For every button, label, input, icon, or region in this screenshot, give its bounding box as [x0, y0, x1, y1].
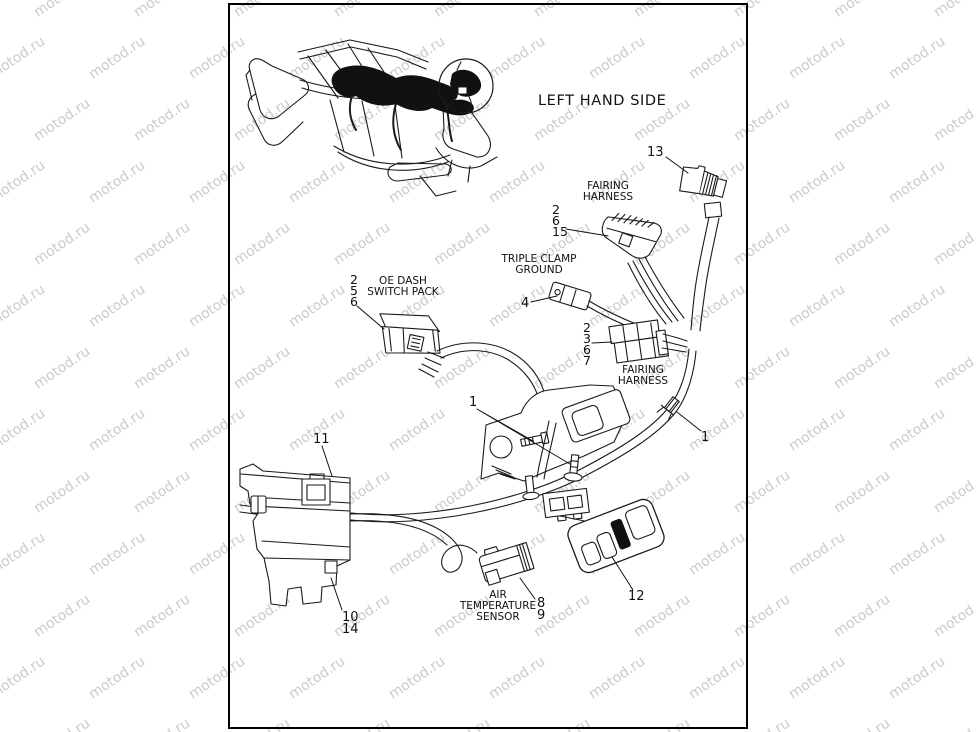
labels-layer: LEFT HAND SIDE 13 FAIRING HARNESS 2 6 15… [0, 0, 976, 732]
parts-diagram-page: motod.rumotod.rumotod.rumotod.rumotod.ru… [0, 0, 976, 732]
label-fairing-harness-mid: FAIRING HARNESS [618, 365, 668, 387]
callout-line: 15 [552, 226, 568, 237]
callout-13: 13 [647, 145, 664, 160]
label-triple-clamp-ground: TRIPLE CLAMP GROUND [502, 254, 577, 276]
callout-line: 7 [583, 355, 591, 366]
callout-4: 4 [521, 296, 529, 311]
label-oe-dash-switch-pack: OE DASH SWITCH PACK [367, 276, 438, 298]
label-line: HARNESS [583, 192, 633, 203]
callout-12: 12 [628, 589, 645, 604]
label-line: GROUND [502, 265, 577, 276]
callout-1-center: 1 [469, 395, 477, 410]
label-air-temperature-sensor: AIR TEMPERATURE SENSOR [460, 590, 536, 623]
callout-group-2-5-6: 2 5 6 [350, 274, 358, 307]
label-line: HARNESS [618, 376, 668, 387]
callout-11: 11 [313, 432, 330, 447]
diagram-title: LEFT HAND SIDE [538, 93, 666, 109]
callout-line: 6 [350, 296, 358, 307]
callout-group-10-14: 10 14 [342, 612, 359, 635]
callout-line: 14 [342, 624, 359, 636]
callout-1-right: 1 [701, 430, 709, 445]
label-fairing-harness-top: FAIRING HARNESS [583, 181, 633, 203]
label-line: SWITCH PACK [367, 287, 438, 298]
callout-group-8-9: 8 9 [537, 598, 545, 621]
label-line: SENSOR [460, 612, 536, 623]
callout-line: 9 [537, 610, 545, 622]
callout-group-2-3-6-7: 2 3 6 7 [583, 322, 591, 366]
callout-group-2-6-15: 2 6 15 [552, 204, 568, 237]
